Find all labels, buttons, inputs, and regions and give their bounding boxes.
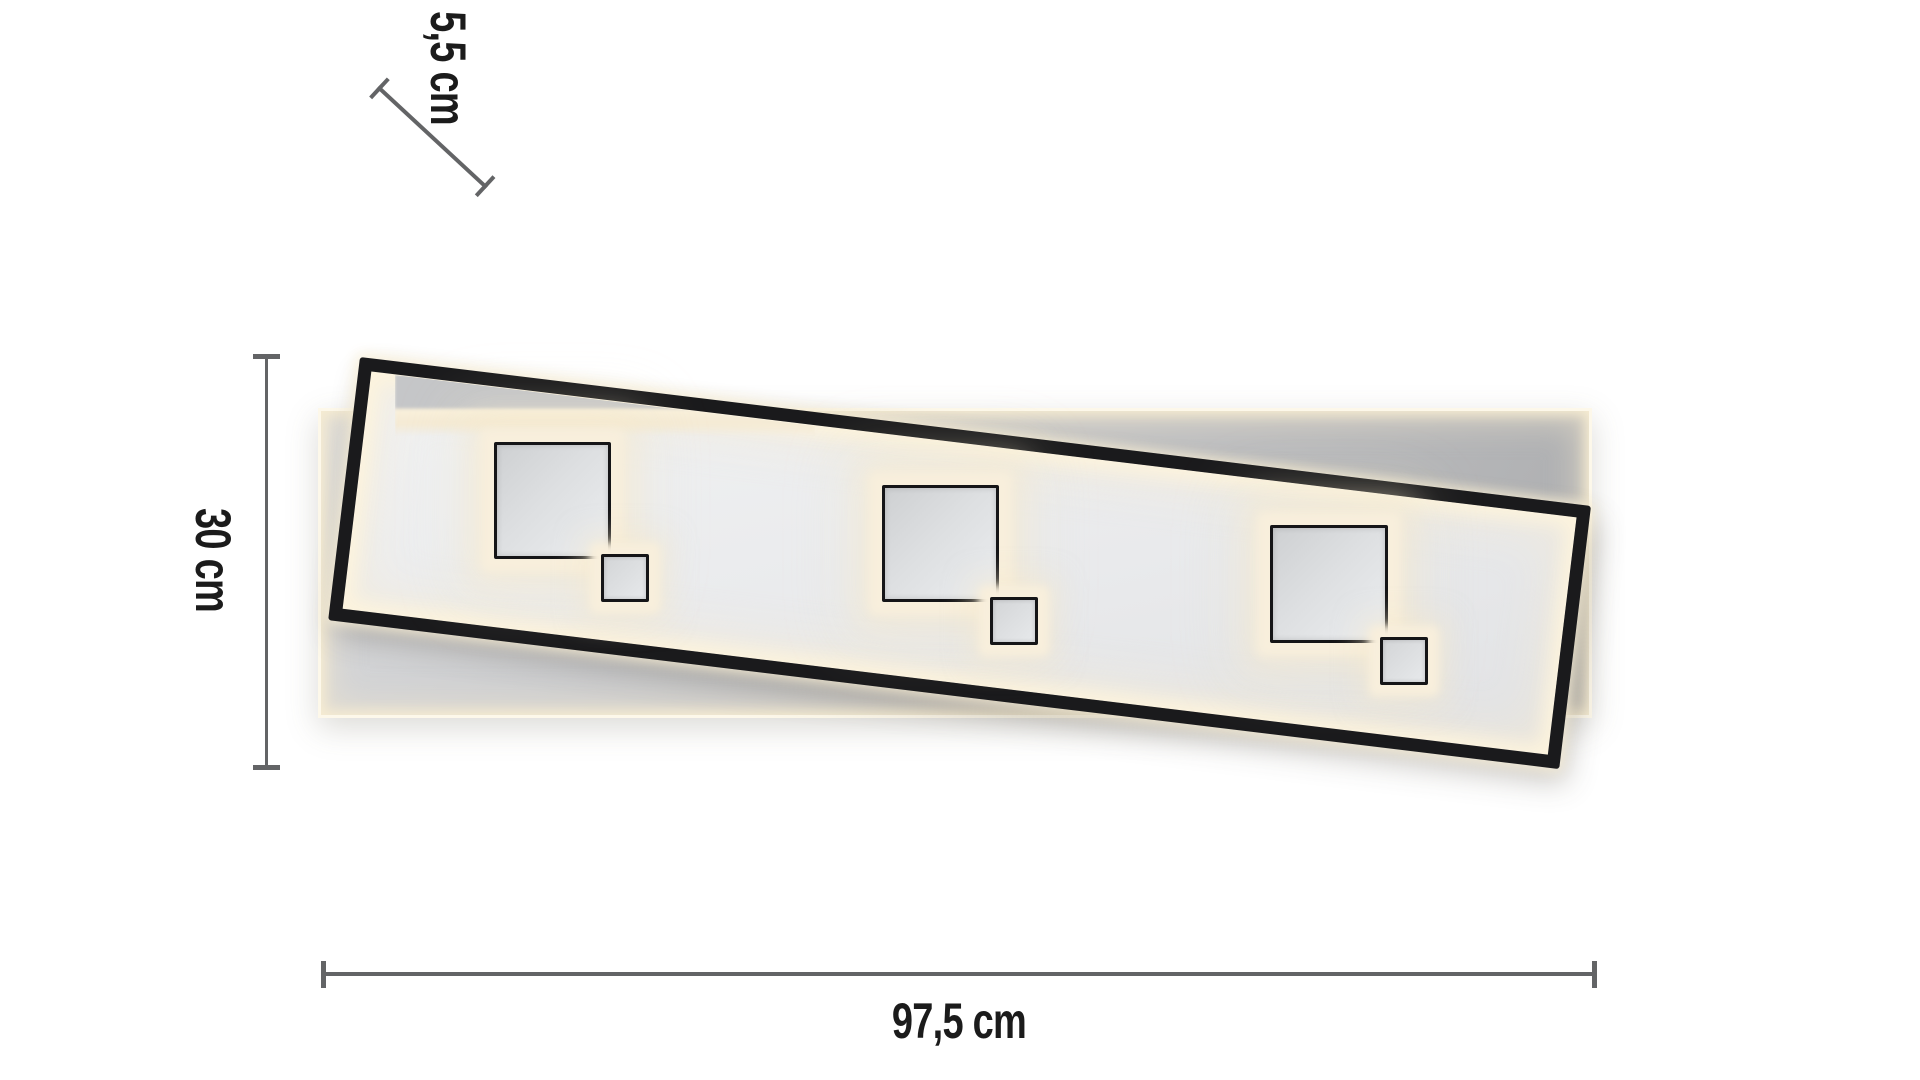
led-square-small-3 (1380, 637, 1428, 685)
led-square-small-2 (990, 597, 1038, 645)
product-dimension-diagram: 30 cm 97,5 cm 5,5 cm (0, 0, 1920, 1080)
led-square-large-1 (494, 442, 611, 559)
led-square-small-1 (601, 554, 649, 602)
height-dimension-cap-top (253, 354, 280, 359)
height-dimension-line (265, 356, 268, 768)
height-dimension-label: 30 cm (188, 508, 238, 612)
width-dimension-cap-left (321, 961, 326, 988)
width-dimension-line (323, 972, 1597, 976)
height-dimension-cap-bottom (253, 765, 280, 770)
led-square-large-3 (1270, 525, 1388, 643)
led-square-large-2 (882, 485, 999, 602)
width-dimension-label: 97,5 cm (892, 996, 1026, 1046)
depth-dimension-label: 5,5 cm (423, 11, 473, 125)
width-dimension-cap-right (1592, 961, 1597, 988)
depth-dimension-cap-start (369, 77, 390, 99)
depth-dimension-cap-end (475, 175, 496, 197)
